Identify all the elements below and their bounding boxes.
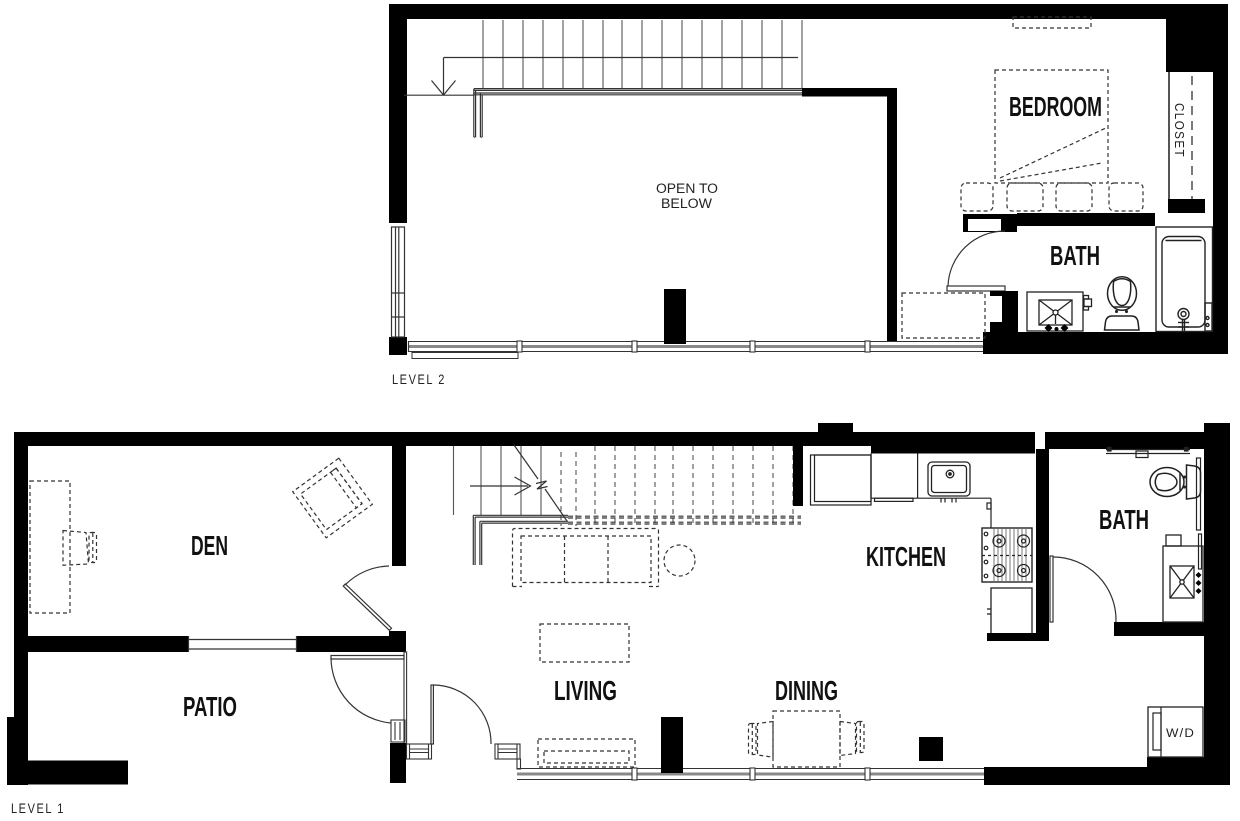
svg-text:OPEN TO: OPEN TO bbox=[656, 181, 718, 196]
svg-text:LEVEL 1: LEVEL 1 bbox=[11, 800, 65, 816]
svg-text:DINING: DINING bbox=[775, 675, 838, 706]
svg-text:W/D: W/D bbox=[1166, 728, 1195, 740]
svg-text:KITCHEN: KITCHEN bbox=[866, 541, 946, 572]
svg-text:LIVING: LIVING bbox=[554, 675, 617, 706]
svg-text:PATIO: PATIO bbox=[183, 691, 237, 722]
svg-text:LEVEL 2: LEVEL 2 bbox=[392, 371, 446, 387]
svg-text:CLOSET: CLOSET bbox=[1172, 103, 1186, 158]
svg-text:BATH: BATH bbox=[1050, 240, 1100, 271]
svg-text:DEN: DEN bbox=[191, 530, 228, 561]
svg-text:BATH: BATH bbox=[1099, 504, 1149, 535]
svg-text:BELOW: BELOW bbox=[661, 196, 712, 211]
svg-text:BEDROOM: BEDROOM bbox=[1009, 91, 1102, 122]
